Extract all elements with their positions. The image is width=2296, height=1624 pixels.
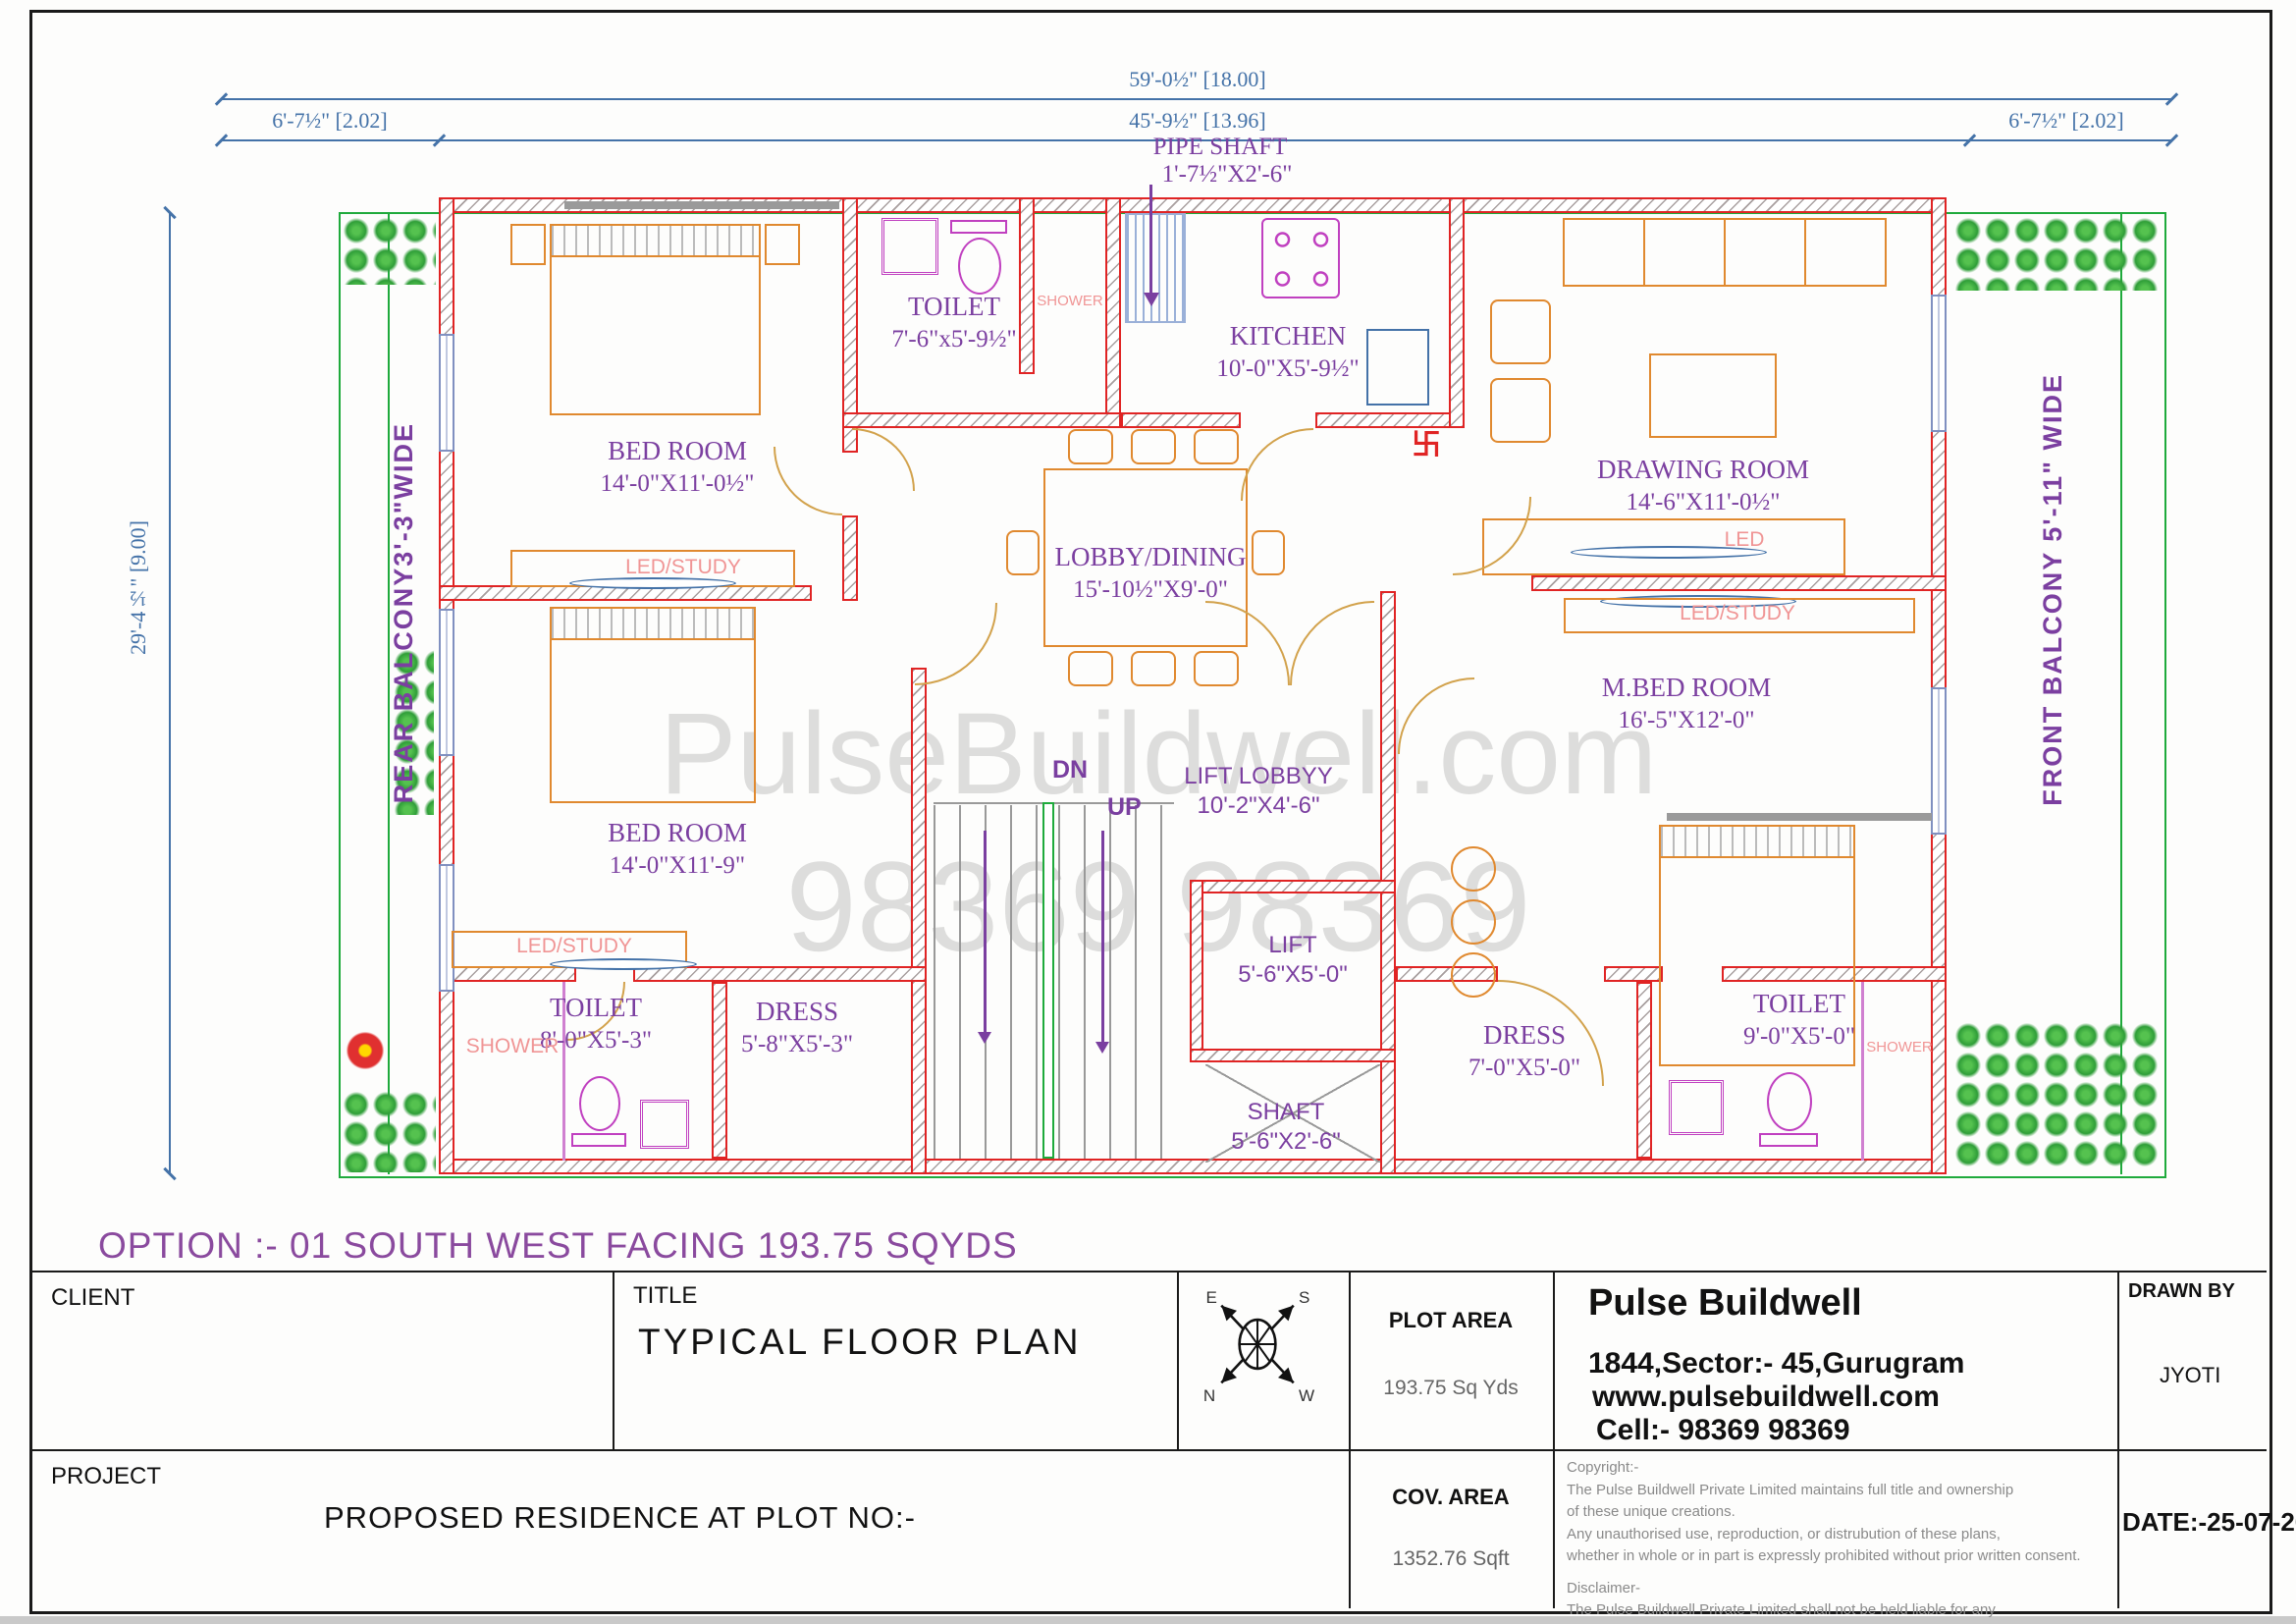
- room-name: KITCHEN: [1216, 320, 1359, 353]
- dining-chair: [1131, 429, 1176, 464]
- room-name: LIFT LOBBYY: [1184, 762, 1333, 791]
- room-size: 14'-6"X11'-0½": [1597, 487, 1809, 517]
- project-value: PROPOSED RESIDENCE AT PLOT NO:-: [324, 1500, 916, 1536]
- room-label-master-bedroom: M.BED ROOM 16'-5"X12'-0": [1602, 672, 1772, 735]
- led-console-top-view: [550, 958, 697, 970]
- dn-label: DN: [1052, 756, 1088, 785]
- plot-area-value: 193.75 Sq Yds: [1383, 1377, 1518, 1400]
- company-address: 1844,Sector:- 45,Gurugram: [1588, 1347, 1964, 1380]
- wall: [633, 966, 927, 982]
- copyright-line: The Pulse Buildwell Private Limited main…: [1567, 1480, 2081, 1502]
- stair-rail: [1042, 802, 1054, 1159]
- washbasin: [640, 1100, 689, 1149]
- shower-label: SHOWER: [466, 1035, 560, 1058]
- pipe-shaft-size: 1'-7½"X2'-6": [1162, 161, 1293, 189]
- copyright-line: Copyright:-: [1567, 1457, 2081, 1480]
- wall: [1604, 966, 1663, 982]
- wall-lift: [1190, 880, 1203, 1062]
- room-size: 9'-0"X5'-0": [1743, 1021, 1855, 1052]
- compass-south: S: [1299, 1288, 1309, 1307]
- dim-text-right-offset: 6'-7½" [2.02]: [2008, 108, 2123, 134]
- room-size: 7'-6"x5'-9½": [891, 324, 1016, 354]
- stair-arrow-up: [1101, 831, 1104, 1049]
- shower-label: SHOWER: [1866, 1039, 1933, 1056]
- wall: [439, 1159, 1947, 1174]
- dim-text-overall-width: 59'-0½" [18.00]: [1129, 67, 1265, 92]
- kitchen-sink: [1366, 329, 1429, 406]
- dining-chair: [1006, 530, 1040, 575]
- room-label-dress-left: DRESS 5'-8"X5'-3": [741, 996, 853, 1059]
- pipe-shaft-arrow: [1144, 293, 1159, 314]
- toilet-tank: [571, 1133, 626, 1147]
- room-label-lift-lobby: LIFT LOBBYY 10'-2"X4'-6": [1184, 762, 1333, 821]
- room-size: 5'-6"X5'-0": [1238, 960, 1348, 990]
- wall: [1636, 982, 1652, 1159]
- swastika-symbol: 卐: [1412, 420, 1441, 463]
- sliding-door-sill: [1667, 813, 1932, 821]
- dining-chair: [1194, 429, 1239, 464]
- dining-chair: [1131, 651, 1176, 686]
- room-name: LOBBY/DINING: [1055, 541, 1247, 574]
- room-name: DRAWING ROOM: [1597, 454, 1809, 487]
- stool: [1451, 846, 1496, 892]
- arrowhead: [1095, 1042, 1109, 1060]
- armchair: [1490, 378, 1551, 443]
- dim-text-inner-width: 45'-9½" [13.96]: [1129, 108, 1265, 134]
- washbasin: [881, 218, 938, 275]
- room-size: 16'-5"X12'-0": [1602, 705, 1772, 735]
- wall: [1449, 197, 1465, 428]
- titleblock-line: [1177, 1271, 1179, 1449]
- room-label-bedroom1: BED ROOM 14'-0"X11'-0½": [601, 435, 755, 499]
- room-name: LIFT: [1238, 931, 1348, 960]
- toilet-tank: [950, 220, 1007, 234]
- titleblock-line: [613, 1271, 614, 1449]
- toilet-bowl: [1767, 1072, 1812, 1131]
- arrowhead: [978, 1032, 991, 1051]
- toilet-bowl: [579, 1076, 620, 1131]
- dining-chair: [1068, 651, 1113, 686]
- drawn-by-value: JYOTI: [2160, 1363, 2220, 1388]
- plant: [1953, 1021, 2160, 1170]
- bed: [550, 224, 761, 415]
- room-label-shaft: SHAFT 5'-6"X2'-6": [1231, 1098, 1341, 1157]
- company-website: www.pulsebuildwell.com: [1592, 1380, 1940, 1414]
- titleblock-line: [1349, 1271, 1351, 1608]
- room-label-lift: LIFT 5'-6"X5'-0": [1238, 931, 1348, 990]
- option-note: OPTION :- 01 SOUTH WEST FACING 193.75 SQ…: [98, 1225, 1018, 1267]
- drawn-by-label: DRAWN BY: [2128, 1280, 2235, 1303]
- led-study-label: LED/STUDY: [625, 556, 741, 579]
- room-name: TOILET: [540, 992, 652, 1025]
- compass-north: N: [1203, 1386, 1215, 1405]
- wall: [1105, 197, 1121, 428]
- room-size: 10'-0"X5'-9½": [1216, 353, 1359, 384]
- room-size: 5'-6"X2'-6": [1231, 1127, 1341, 1157]
- room-name: DRESS: [1468, 1019, 1580, 1053]
- plant: [342, 1090, 436, 1172]
- up-label: UP: [1107, 793, 1142, 822]
- shower-partition: [1861, 982, 1864, 1161]
- led-study-label: LED/STUDY: [516, 935, 632, 958]
- room-name: BED ROOM: [608, 817, 747, 850]
- bed-headboard: [1661, 827, 1853, 858]
- plant: [342, 216, 436, 285]
- compass-east: E: [1206, 1288, 1217, 1307]
- rear-balcony-label: REAR BALCONY3'-3"WIDE: [389, 422, 419, 803]
- company-name: Pulse Buildwell: [1588, 1282, 1862, 1325]
- window: [439, 334, 454, 452]
- armchair: [1490, 299, 1551, 364]
- room-name: SHAFT: [1231, 1098, 1341, 1127]
- room-size: 7'-0"X5'-0": [1468, 1053, 1580, 1083]
- room-name: DRESS: [741, 996, 853, 1029]
- compass-rose: E S N W: [1193, 1282, 1322, 1406]
- toilet-bowl: [958, 238, 1001, 295]
- wall: [1315, 412, 1465, 428]
- bed-headboard: [552, 226, 759, 257]
- compass-west: W: [1299, 1386, 1315, 1405]
- window: [1931, 295, 1947, 432]
- bedside-table: [765, 224, 800, 265]
- shower-label: SHOWER: [1037, 293, 1103, 309]
- wall: [911, 668, 927, 1174]
- window: [439, 609, 454, 756]
- room-label-toilet-top: TOILET 7'-6"x5'-9½": [891, 291, 1016, 354]
- stool: [1451, 952, 1496, 998]
- pipe-shaft-label: PIPE SHAFT: [1153, 134, 1288, 161]
- bed-headboard: [552, 609, 754, 640]
- wall-lift: [1190, 880, 1396, 893]
- project-label: PROJECT: [51, 1463, 161, 1490]
- room-label-lobby-dining: LOBBY/DINING 15'-10½"X9'-0": [1055, 541, 1247, 605]
- copyright-block: Copyright:- The Pulse Buildwell Private …: [1567, 1457, 2081, 1624]
- wall: [439, 966, 576, 982]
- dimension-line-overall: [221, 98, 2172, 100]
- dim-text-left-offset: 6'-7½" [2.02]: [272, 108, 387, 134]
- date-value: DATE:-25-07-2025: [2122, 1507, 2296, 1538]
- washbasin: [1669, 1080, 1724, 1135]
- disclaimer-line: Disclaimer-: [1567, 1578, 2081, 1600]
- room-label-kitchen: KITCHEN 10'-0"X5'-9½": [1216, 320, 1359, 384]
- window: [439, 864, 454, 992]
- wall: [712, 982, 727, 1159]
- dimension-line-height: [169, 212, 171, 1174]
- window: [1931, 687, 1947, 835]
- stool: [1451, 899, 1496, 945]
- company-cell: Cell:- 98369 98369: [1596, 1414, 1850, 1447]
- dim-text-overall-height: 29'-4½" [9.00]: [126, 520, 151, 655]
- wall: [842, 412, 1121, 428]
- room-size: 14'-0"X11'-9": [608, 850, 747, 881]
- client-label: CLIENT: [51, 1284, 134, 1312]
- toilet-tank: [1759, 1133, 1818, 1147]
- title-value: TYPICAL FLOOR PLAN: [638, 1322, 1082, 1363]
- plot-area-label: PLOT AREA: [1389, 1308, 1513, 1333]
- wall: [1121, 412, 1241, 428]
- plant: [1953, 216, 2160, 291]
- copyright-line: Any unauthorised use, reproduction, or d…: [1567, 1524, 2081, 1546]
- room-label-toilet-br: TOILET 9'-0"X5'-0": [1743, 988, 1855, 1052]
- copyright-line: of these unique creations.: [1567, 1501, 2081, 1524]
- wall: [1019, 197, 1035, 374]
- bedside-table: [510, 224, 546, 265]
- led-label: LED: [1725, 528, 1765, 552]
- stove: [1261, 218, 1340, 298]
- room-size: 5'-8"X5'-3": [741, 1029, 853, 1059]
- disclaimer-line: The Pulse Buildwell Private Limited shal…: [1567, 1599, 2081, 1622]
- room-name: TOILET: [1743, 988, 1855, 1021]
- room-size: 15'-10½"X9'-0": [1055, 574, 1247, 605]
- room-name: BED ROOM: [601, 435, 755, 468]
- dining-chair: [1068, 429, 1113, 464]
- front-balcony-label: FRONT BALCONY 5'-11" WIDE: [2038, 373, 2068, 806]
- coffee-table: [1649, 353, 1777, 438]
- room-label-dress-right: DRESS 7'-0"X5'-0": [1468, 1019, 1580, 1083]
- room-label-drawing-room: DRAWING ROOM 14'-6"X11'-0½": [1597, 454, 1809, 517]
- title-label: TITLE: [633, 1282, 697, 1310]
- room-label-bedroom2: BED ROOM 14'-0"X11'-9": [608, 817, 747, 881]
- room-size: 10'-2"X4'-6": [1184, 791, 1333, 821]
- wall: [1531, 575, 1947, 591]
- titleblock-line: [1553, 1271, 1555, 1608]
- led-study-label: LED/STUDY: [1680, 602, 1795, 625]
- titleblock-line: [29, 1449, 2267, 1451]
- copyright-line: whether in whole or in part is expressly…: [1567, 1545, 2081, 1568]
- cov-area-label: COV. AREA: [1392, 1485, 1509, 1510]
- titleblock-line: [2117, 1271, 2119, 1608]
- stair-arrow-dn: [984, 831, 987, 1039]
- wall: [842, 515, 858, 601]
- dining-chair: [1252, 530, 1285, 575]
- bed: [550, 607, 756, 803]
- room-size: 14'-0"X11'-0½": [601, 468, 755, 499]
- drawing-sheet: PulseBuildwell.com 98369 98369 59'-0½" […: [0, 0, 2296, 1624]
- stair-treads: [1058, 805, 1174, 1159]
- room-name: TOILET: [891, 291, 1016, 324]
- stair-treads: [934, 805, 1041, 1159]
- titleblock-line: [29, 1271, 2267, 1272]
- pipe-shaft-leader: [1149, 185, 1152, 295]
- flower: [344, 1029, 387, 1072]
- sofa: [1563, 218, 1887, 287]
- wall-lift: [1190, 1049, 1396, 1062]
- sliding-door-sill: [564, 201, 839, 209]
- room-name: M.BED ROOM: [1602, 672, 1772, 705]
- cov-area-value: 1352.76 Sqft: [1392, 1547, 1509, 1571]
